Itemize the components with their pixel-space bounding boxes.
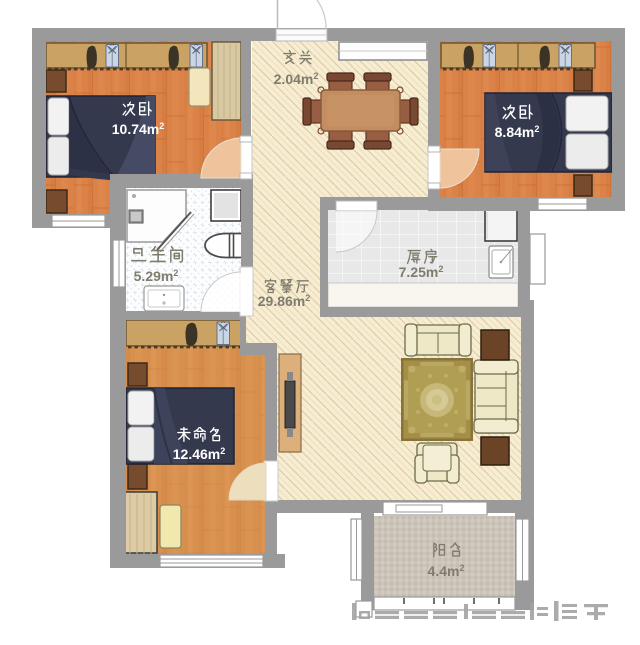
svg-text:2.04m2: 2.04m2 <box>274 71 319 87</box>
svg-text:5.29m2: 5.29m2 <box>134 268 179 284</box>
svg-text:4.4m2: 4.4m2 <box>428 563 465 579</box>
svg-text:7.25m2: 7.25m2 <box>399 264 444 280</box>
svg-text:29.86m2: 29.86m2 <box>258 293 311 309</box>
svg-text:8.84m2: 8.84m2 <box>495 124 540 140</box>
svg-text:12.46m2: 12.46m2 <box>173 446 226 462</box>
svg-text:10.74m2: 10.74m2 <box>112 121 165 137</box>
